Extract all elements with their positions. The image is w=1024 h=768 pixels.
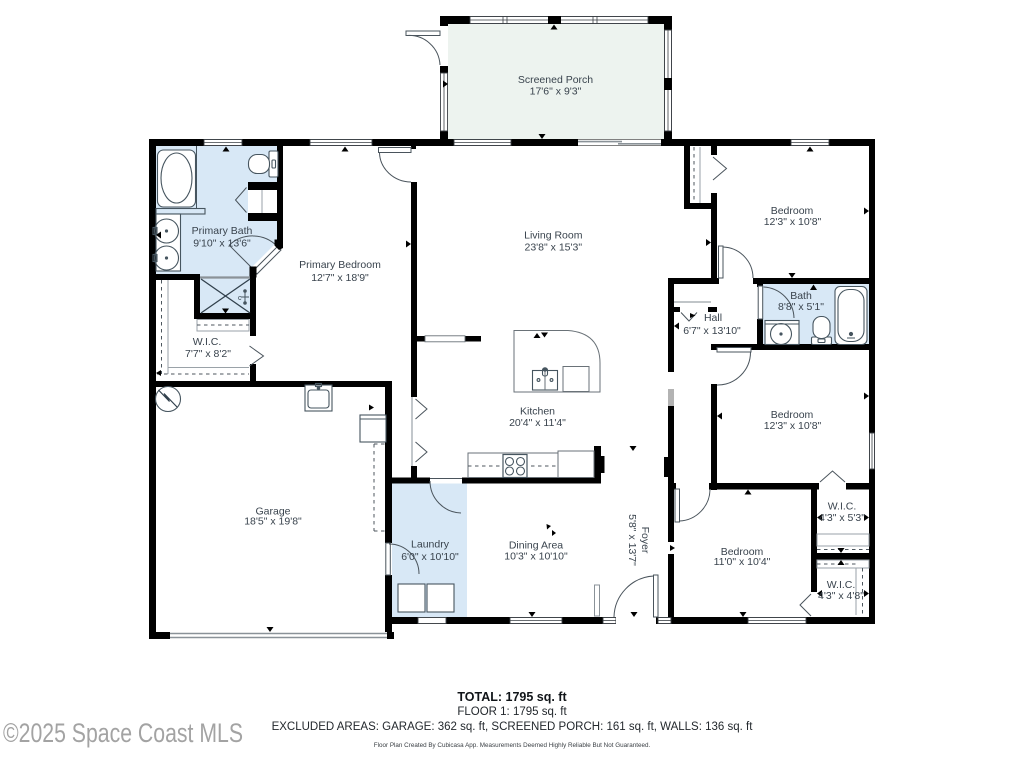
- svg-text:©2025 Space Coast MLS: ©2025 Space Coast MLS: [3, 718, 243, 748]
- svg-text:Screened Porch: Screened Porch: [518, 74, 593, 86]
- svg-text:Primary Bedroom: Primary Bedroom: [299, 259, 381, 271]
- svg-text:17'6" x 9'3": 17'6" x 9'3": [530, 86, 582, 98]
- svg-text:12'3" x 10'8": 12'3" x 10'8": [764, 216, 822, 228]
- svg-text:TOTAL: 1795 sq. ft: TOTAL: 1795 sq. ft: [457, 690, 567, 704]
- svg-text:10'3" x 10'10": 10'3" x 10'10": [504, 551, 568, 563]
- svg-text:6'7" x 13'10": 6'7" x 13'10": [683, 325, 741, 337]
- svg-text:Laundry: Laundry: [411, 539, 450, 551]
- svg-text:Living Room: Living Room: [524, 230, 583, 242]
- svg-text:Hall: Hall: [704, 312, 722, 324]
- svg-text:W.I.C.: W.I.C.: [193, 336, 222, 348]
- svg-text:8'8" x 5'1": 8'8" x 5'1": [778, 301, 824, 313]
- svg-text:EXCLUDED AREAS: GARAGE: 362 sq: EXCLUDED AREAS: GARAGE: 362 sq. ft, SCRE…: [272, 721, 754, 733]
- svg-text:12'3" x 10'8": 12'3" x 10'8": [764, 420, 822, 432]
- svg-text:9'10" x 13'6": 9'10" x 13'6": [193, 238, 251, 250]
- svg-text:Foyer: Foyer: [639, 527, 651, 554]
- svg-text:18'5" x 19'8": 18'5" x 19'8": [244, 516, 302, 528]
- svg-text:20'4" x 11'4": 20'4" x 11'4": [509, 417, 566, 429]
- svg-text:FLOOR 1: 1795 sq. ft: FLOOR 1: 1795 sq. ft: [457, 706, 567, 718]
- svg-text:11'0" x 10'4": 11'0" x 10'4": [714, 556, 771, 568]
- svg-text:7'7" x 8'2": 7'7" x 8'2": [185, 348, 231, 360]
- svg-text:c: c: [238, 295, 242, 302]
- svg-text:23'8" x 15'3": 23'8" x 15'3": [525, 242, 583, 254]
- svg-text:Floor Plan Created By Cubicasa: Floor Plan Created By Cubicasa App. Meas…: [374, 742, 651, 749]
- svg-text:12'7" x 18'9": 12'7" x 18'9": [311, 272, 369, 284]
- svg-text:5'8" x 13'7": 5'8" x 13'7": [626, 514, 638, 566]
- svg-text:4'3" x 5'3": 4'3" x 5'3": [819, 512, 865, 524]
- svg-text:6'0" x 10'10": 6'0" x 10'10": [401, 551, 459, 563]
- svg-text:Primary Bath: Primary Bath: [192, 225, 253, 237]
- svg-text:W.I.C.: W.I.C.: [828, 501, 857, 513]
- svg-text:4'3" x 4'8": 4'3" x 4'8": [818, 590, 864, 602]
- svg-text:Kitchen: Kitchen: [520, 406, 555, 418]
